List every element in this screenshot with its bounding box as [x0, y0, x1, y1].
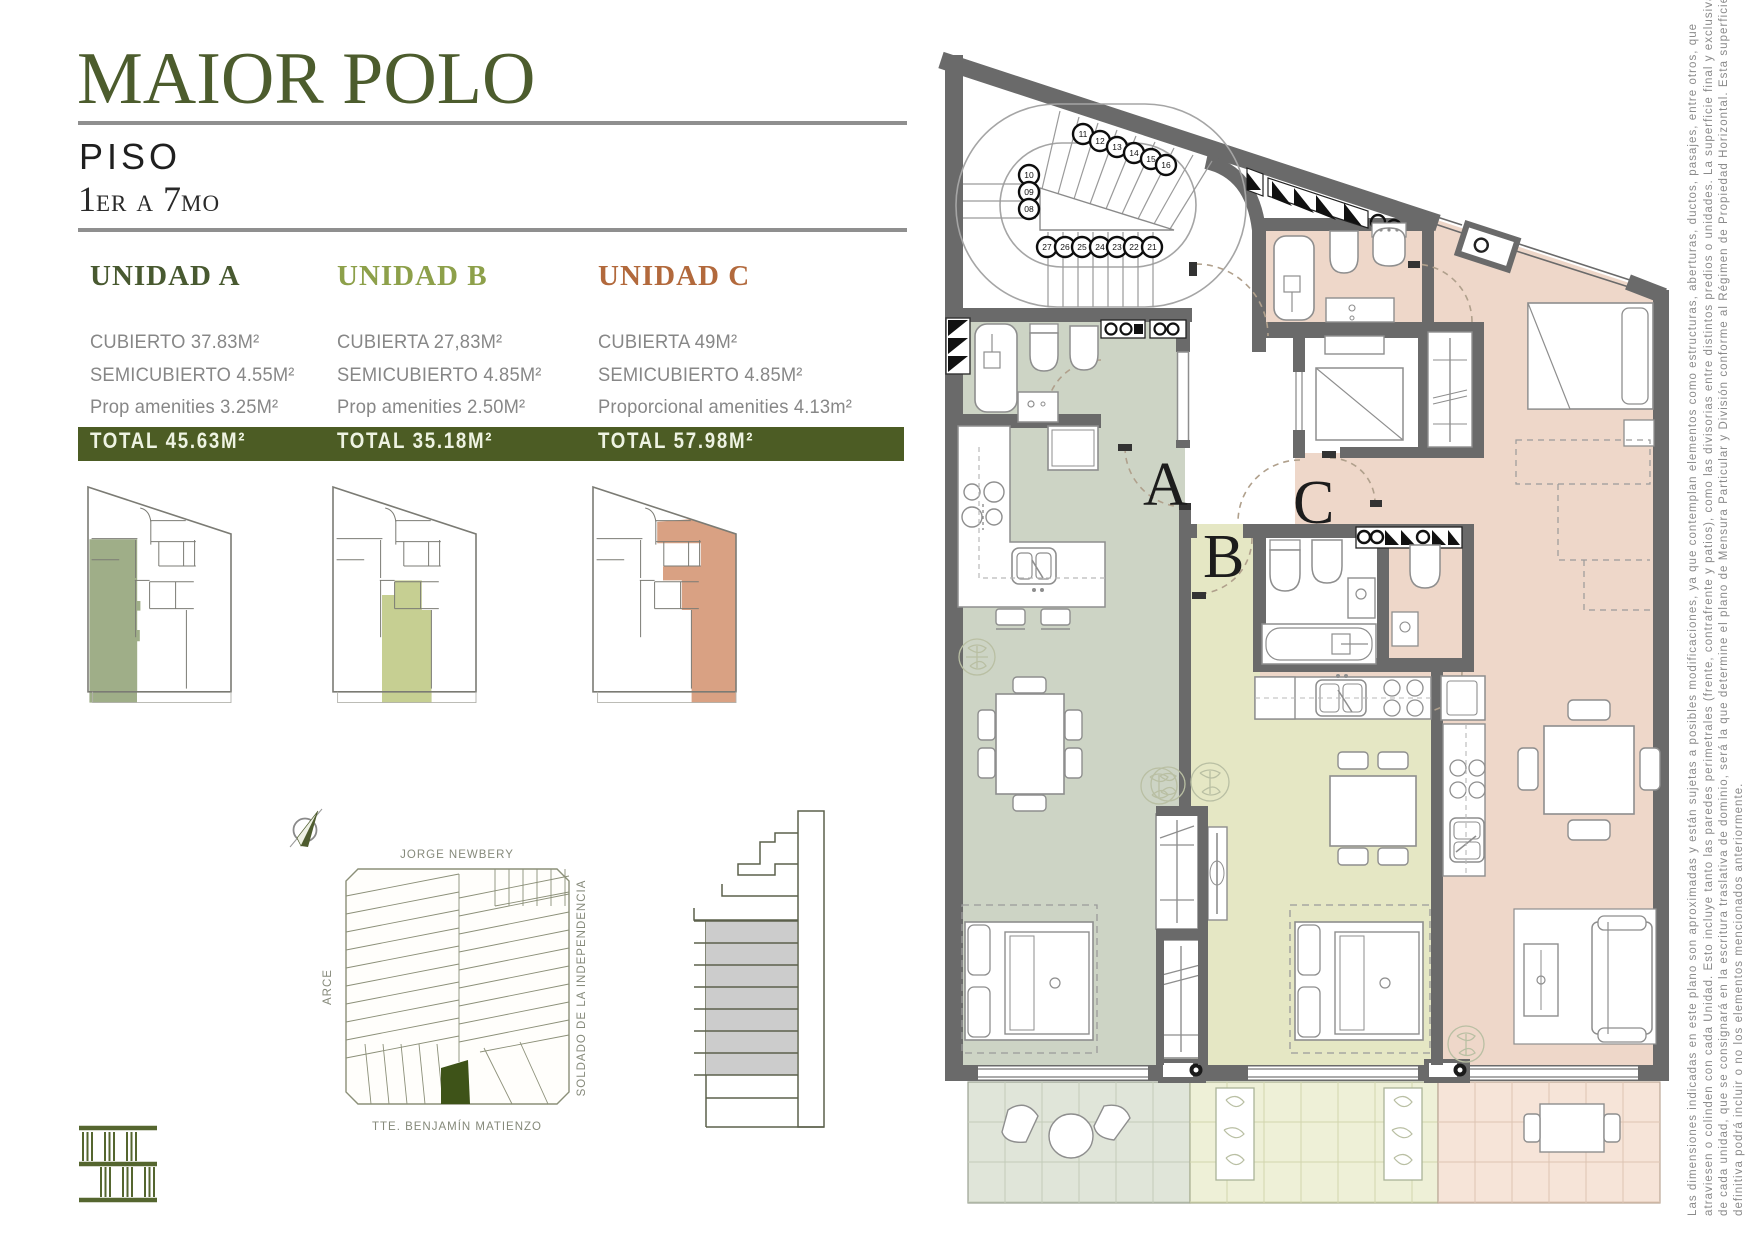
svg-text:10: 10	[1024, 170, 1034, 180]
svg-text:16: 16	[1161, 160, 1171, 170]
svg-text:de cada unidad, que se consign: de cada unidad, que se consignará en la …	[1718, 0, 1730, 1216]
svg-text:ARCE: ARCE	[322, 969, 334, 1005]
svg-text:B: B	[1203, 523, 1244, 591]
svg-text:09: 09	[1024, 187, 1034, 197]
svg-text:JORGE NEWBERY: JORGE NEWBERY	[400, 849, 514, 861]
svg-text:26: 26	[1060, 242, 1070, 252]
svg-text:27: 27	[1042, 242, 1052, 252]
svg-text:22: 22	[1129, 242, 1139, 252]
svg-text:C: C	[1293, 469, 1334, 537]
svg-text:13: 13	[1112, 142, 1122, 152]
svg-text:11: 11	[1079, 129, 1088, 139]
svg-text:21: 21	[1147, 242, 1157, 252]
svg-text:24: 24	[1095, 242, 1105, 252]
svg-text:atraviesen o colinden con cada: atraviesen o colinden con cada Unidad. E…	[1703, 0, 1715, 1216]
svg-text:A: A	[1143, 451, 1188, 519]
svg-text:14: 14	[1129, 148, 1139, 158]
svg-text:SOLDADO DE LA INDEPENDENCIA: SOLDADO DE LA INDEPENDENCIA	[576, 880, 588, 1097]
svg-text:TTE. BENJAMÍN MATIENZO: TTE. BENJAMÍN MATIENZO	[372, 1120, 542, 1133]
svg-text:15: 15	[1146, 154, 1156, 164]
svg-text:23: 23	[1112, 242, 1122, 252]
svg-text:25: 25	[1077, 242, 1087, 252]
svg-text:Las dimensiones indicadas en e: Las dimensiones indicadas en este plano …	[1687, 23, 1699, 1216]
svg-text:08: 08	[1024, 204, 1034, 214]
svg-text:12: 12	[1095, 136, 1105, 146]
svg-text:definitiva podrá incluir o no: definitiva podrá incluir o no los elemen…	[1733, 783, 1745, 1216]
